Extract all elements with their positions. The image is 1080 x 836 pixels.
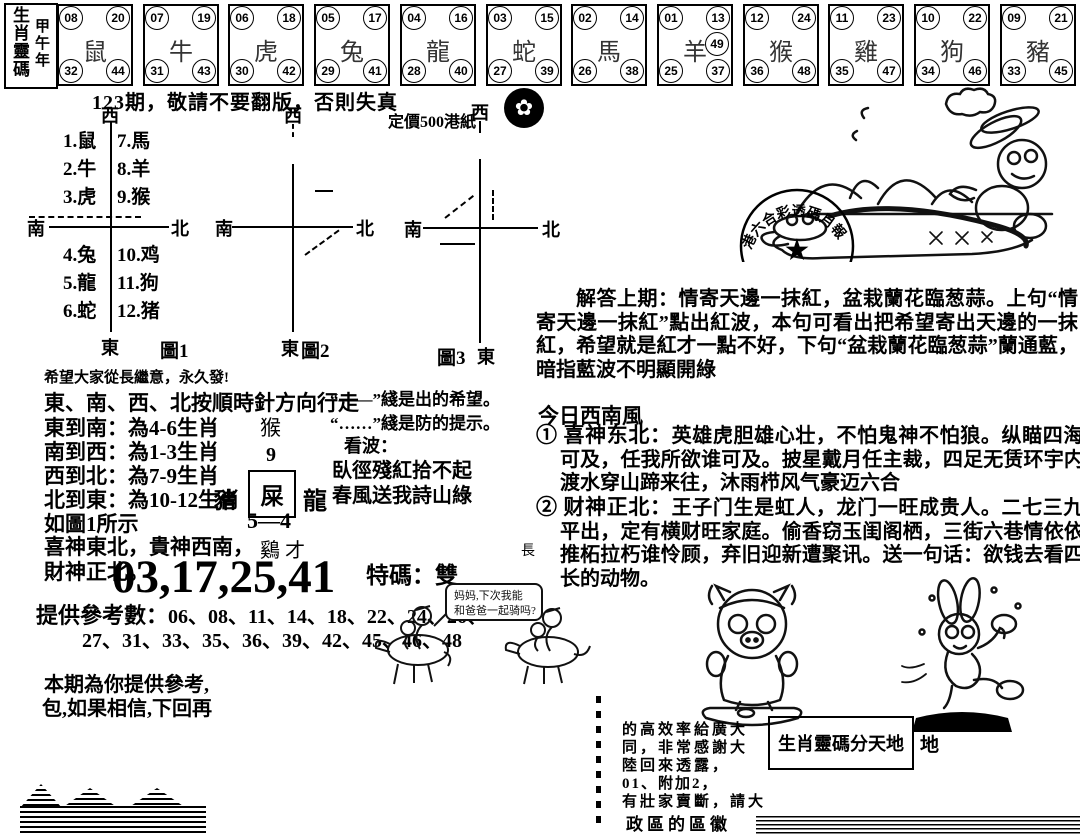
d1-east-label: 東: [101, 334, 119, 360]
zodiac-number: 18: [277, 6, 301, 30]
zodiac-number: 02: [573, 6, 597, 30]
pig-body: [721, 656, 783, 705]
compass-diagram-2: 西 南 北 東 圖2: [215, 100, 380, 362]
zodiac-number-row: 08203244鼠07193143牛06183042虎05172941兔0416…: [0, 0, 1080, 86]
br-partial-line: 有壯家賣斷，請大: [622, 790, 766, 811]
dancing-rabbit-cartoon: [882, 572, 1042, 732]
d2-south-label: 南: [215, 215, 233, 241]
pig-ears: [716, 586, 788, 600]
hope-line: 希望大家從長繼意，永久發!: [44, 366, 229, 387]
rabbit-ear-2: [979, 102, 1042, 138]
bubble-line1: 妈妈,下次我能: [454, 588, 523, 602]
stamp-star-icon: ★: [784, 234, 811, 262]
rabbit-mouth: [1012, 174, 1034, 179]
zodiac-number: 05: [316, 6, 340, 30]
zodiac-box: 08203244鼠: [57, 4, 133, 86]
zodiac-number: 06: [230, 6, 254, 30]
zodiac-legend-cell: 1.鼠: [63, 126, 96, 153]
item1-lead: ① 喜神东北：: [536, 423, 672, 447]
answer-text: 解答上期：情寄天邊一抹紅，盆栽蘭花臨葱蒜。上句“情寄天邊一抹紅”點出紅波，本句可…: [536, 288, 1078, 381]
compass-diagram-1: 西 南 北 東 圖1 1.鼠 7.馬 2.牛 8.羊 3.虎 9.猴 4.兔 1…: [25, 100, 205, 362]
zodiac-animal-icon: 雞: [830, 32, 902, 67]
d3-short-dashed-vertical: [492, 190, 494, 220]
zodiac-number: 15: [535, 6, 559, 30]
zodiac-legend-cell: 12.猪: [117, 296, 160, 323]
crocodile-scales: [930, 232, 992, 244]
slogan-box: 生肖靈碼分天地: [768, 716, 914, 770]
item1-paragraph: ① 喜神东北：英雄虎胆雄心壮，不怕鬼神不怕狼。纵瞄四海谁可及，任我所欲谁可及。披…: [536, 424, 1080, 496]
d2-east-label: 東: [281, 335, 299, 361]
mini-monkey: 猴: [260, 412, 281, 442]
d3-dashed-diagonal: [444, 195, 474, 219]
zodiac-animal-icon: 蛇: [488, 32, 560, 67]
zodiac-number: 12: [745, 6, 769, 30]
zodiac-number: 20: [106, 6, 130, 30]
cloud: [946, 89, 995, 116]
br-stripes: [756, 816, 1080, 834]
slogan-text: 生肖靈碼分天地: [778, 730, 904, 756]
d2-north-label: 北: [356, 215, 374, 241]
zodiac-box: 04162840龍: [400, 4, 476, 86]
zodiac-number: 22: [963, 6, 987, 30]
mini-boxed-text: 屎: [261, 477, 284, 511]
motion-lines: [902, 664, 926, 682]
zodiac-box: 07193143牛: [143, 4, 219, 86]
zodiac-legend-cell: 2.牛: [63, 154, 96, 181]
rabbit-arm-up: [978, 628, 1005, 648]
zodiac-legend-cell: 9.猴: [117, 182, 150, 209]
d3-dashed-tick: [479, 121, 481, 133]
zodiac-animal-icon: 牛: [145, 32, 217, 67]
zodiac-animal-icon: 猴: [745, 32, 817, 67]
br-last-line: 政區的區徽: [626, 810, 731, 835]
stripe-pyramid-2: [62, 788, 118, 808]
d2-horizontal-line: [232, 226, 353, 228]
fold-tick-column: [596, 696, 601, 830]
d3-figure-label: 圖3: [437, 343, 466, 370]
zodiac-legend-cell: 11.狗: [117, 268, 159, 295]
d3-south-label: 南: [404, 216, 422, 242]
stripe-pyramid-3: [128, 788, 186, 808]
zodiac-number: 08: [59, 6, 83, 30]
d1-south-label: 南: [27, 215, 45, 241]
horse-riders-cartoon: 妈妈,下次我能 和爸爸一起骑吗?: [370, 572, 632, 692]
zodiac-number: 03: [488, 6, 512, 30]
mini-nine: 9: [266, 444, 276, 467]
mini-right-char: 龍: [303, 481, 327, 516]
zodiac-number: 01: [659, 6, 683, 30]
zodiac-legend-cell: 5.龍: [63, 268, 96, 295]
main-numbers: 03,17,25,41: [112, 550, 335, 604]
zodiac-box: 09213345豬: [1000, 4, 1076, 86]
d3-short-solid-line: [440, 243, 475, 245]
d3-north-label: 北: [542, 216, 560, 242]
d1-dashed-line: [29, 216, 141, 218]
zodiac-box: 02142638馬: [571, 4, 647, 86]
zodiac-number: 11: [830, 6, 854, 30]
legend-dotted-line: “……”綫是防的提示。: [330, 409, 500, 434]
zodiac-number: 10: [916, 6, 940, 30]
zodiac-number: 07: [145, 6, 169, 30]
zodiac-legend-cell: 3.虎: [63, 182, 96, 209]
zodiac-legend-cell: 8.羊: [117, 154, 150, 181]
zodiac-legend-cell: 6.蛇: [63, 296, 96, 323]
partial-line2: 包,如果相信,下回再: [42, 692, 212, 721]
d1-horizontal-line: [49, 226, 169, 228]
headband: [720, 600, 784, 608]
rabbit-body: [945, 652, 980, 688]
d2-dashed-tick: [292, 124, 294, 137]
zodiac-number: 16: [449, 6, 473, 30]
bubble-line2: 和爸爸一起骑吗?: [454, 604, 536, 617]
zodiac-number: 04: [402, 6, 426, 30]
zodiac-legend-cell: 4.兔: [63, 240, 96, 267]
d3-vertical-line: [479, 159, 481, 343]
outside-char: 地: [920, 730, 939, 757]
d2-figure-label: 圖2: [301, 336, 330, 363]
zodiac-animal-icon: 豬: [1002, 32, 1074, 67]
zodiac-animal-icon: 龍: [402, 32, 474, 67]
d2-dashed-diagonal: [304, 230, 339, 256]
zodiac-animal-icon: 虎: [230, 32, 302, 67]
zodiac-number: 24: [792, 6, 816, 30]
d1-north-label: 北: [171, 215, 189, 241]
zodiac-number: 17: [363, 6, 387, 30]
round-stamp: 港六合彩透碼月報 ★: [732, 182, 862, 262]
zodiac-box: 11233547雞: [828, 4, 904, 86]
kanbo-line2: 春風送我詩山綠: [332, 479, 472, 508]
d2-vertical-line: [292, 164, 294, 332]
zodiac-legend-cell: 7.馬: [117, 126, 150, 153]
zodiac-animal-icon: 兔: [316, 32, 388, 67]
stripe-base: [20, 806, 206, 836]
zodiac-number: 09: [1002, 6, 1026, 30]
rabbit-body: [976, 186, 1028, 230]
zodiac-box: 01132537羊49: [657, 4, 733, 86]
d1-figure-label: 圖1: [160, 336, 189, 363]
zodiac-animal-icon: 鼠: [59, 32, 131, 67]
stray-char: 長: [521, 540, 535, 560]
zodiac-number: 23: [877, 6, 901, 30]
rabbit-head: [998, 140, 1046, 188]
answer-paragraph: 解答上期：情寄天邊一抹紅，盆栽蘭花臨葱蒜。上句“情寄天邊一抹紅”點出紅波，本句可…: [536, 288, 1078, 382]
d3-horizontal-line: [423, 227, 538, 229]
zodiac-box: 12243648猴: [743, 4, 819, 86]
item2-lead: ② 财神正北：: [536, 495, 672, 519]
zodiac-number-extra: 49: [705, 32, 729, 56]
zodiac-box: 06183042虎: [228, 4, 304, 86]
rabbit-mouth: [954, 646, 966, 649]
d2-dash-mark: [315, 190, 333, 192]
pedestal: [912, 712, 1012, 732]
mini-below: 5—4: [247, 508, 291, 534]
wind-marks: [853, 108, 868, 140]
d3-east-label: 東: [477, 343, 495, 369]
legend-solid-line: “——”綫是出的希望。: [330, 385, 500, 410]
zodiac-box: 10223446狗: [914, 4, 990, 86]
zodiac-number: 14: [620, 6, 644, 30]
zodiac-number: 21: [1049, 6, 1073, 30]
zodiac-box: 03152739蛇: [486, 4, 562, 86]
stripe-pyramid-1: [20, 784, 62, 808]
zodiac-animal-icon: 狗: [916, 32, 988, 67]
zodiac-number: 13: [706, 6, 730, 30]
zodiac-legend-cell: 10.鸡: [117, 240, 160, 267]
zodiac-animal-icon: 馬: [573, 32, 645, 67]
zodiac-box: 05172941兔: [314, 4, 390, 86]
zodiac-number: 19: [192, 6, 216, 30]
pig-cartoon: [688, 572, 818, 732]
mini-left-char: 豬: [214, 483, 236, 515]
tip-sheet-page: 生肖靈碼 甲午年 08203244鼠07193143牛06183042虎0517…: [0, 0, 1080, 836]
